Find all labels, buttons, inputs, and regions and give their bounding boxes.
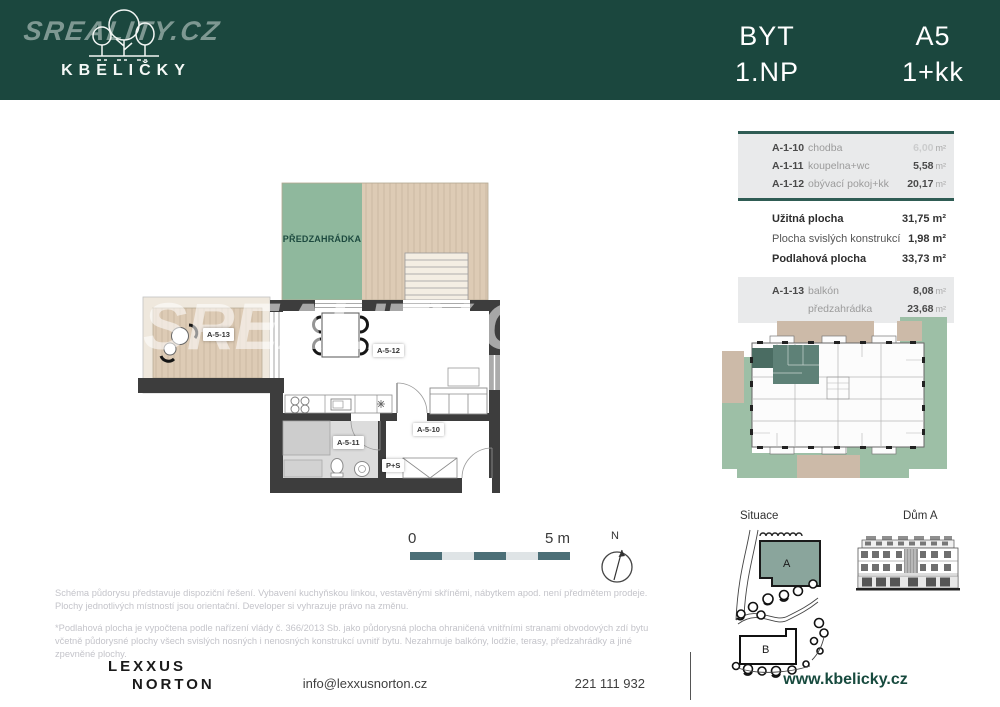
room-label-balcony: A-5-13 [203,328,234,341]
floor-label: 1.NP [712,57,822,88]
garden-label: PŘEDZAHRÁDKA [280,234,364,244]
highlight-unit-balcony [752,348,773,368]
site-building-a-label: A [783,558,790,570]
summary-row: Užitná plocha 31,75 m² [738,209,954,229]
trees-logo-icon [85,4,163,66]
compass-icon [595,528,645,590]
room-label-bathroom: A-5-11 [333,436,364,449]
footer-divider [690,652,691,700]
agency-name-line1: LEXXUS [108,658,215,676]
summary-row: Plocha svislých konstrukcí 1,98 m² [738,229,954,249]
layout-code: 1+kk [878,57,988,88]
summary-row: Podlahová plocha 33,73 m² [738,249,954,269]
brand-name: KBELIČKY [52,62,200,80]
scale-end-label: 5 m [528,530,570,547]
lexxus-norton-logo: LEXXUS NORTON [108,658,215,694]
highlight-unit-a5 [773,345,819,384]
table-row: A-1-10 chodba 6,00m² [738,139,954,157]
unit-type-block: BYT 1.NP [712,0,822,100]
agency-name-line2: NORTON [132,676,215,694]
disclaimer-paragraph-2: *Podlahová plocha je vypočtena podle nař… [55,622,655,661]
room-label-closet: P+S [382,459,404,472]
scale-bar [410,552,570,560]
table-row: A-1-12 obývací pokoj+kk 20,17m² [738,175,954,193]
unit-code-block: A5 1+kk [878,0,988,100]
area-table-rooms: A-1-10 chodba 6,00m² A-1-11 koupelna+wc … [738,131,954,198]
disclaimer-paragraph-1: Schéma půdorysu představuje dispoziční ř… [55,587,655,613]
scale-start-label: 0 [408,530,416,547]
area-table: A-1-10 chodba 6,00m² A-1-11 koupelna+wc … [738,131,954,323]
header-bar: SREALITY.CZ KBELIČKY BYT 1.NP A5 1+kk [0,0,1000,100]
website-link[interactable]: www.kbelicky.cz [728,671,963,689]
unit-type-label: BYT [712,21,822,52]
unit-code: A5 [878,21,988,52]
dum-a-label: Dům A [903,510,938,522]
site-building-b-label: B [762,644,769,656]
room-label-hall: A-5-10 [413,423,444,436]
area-table-summary: Užitná plocha 31,75 m² Plocha svislých k… [738,198,954,277]
footer-email-link[interactable]: info@lexxusnorton.cz [250,676,480,691]
dishwasher-icon [377,400,385,408]
table-row: A-1-11 koupelna+wc 5,58m² [738,157,954,175]
site-plan [728,524,843,679]
floor-plan-drawing [135,160,515,505]
building-elevation [852,534,964,596]
floor-plan: SREALITY.CZ PŘEDZAHRÁDKA A-5-13 A-5-12 A… [135,160,515,505]
situace-label: Situace [740,510,778,522]
building-overview-plan [722,315,947,480]
table-row: A-1-13 balkón 8,08m² [738,282,954,300]
room-label-living: A-5-12 [373,344,404,357]
footer-phone: 221 111 932 [555,676,645,691]
